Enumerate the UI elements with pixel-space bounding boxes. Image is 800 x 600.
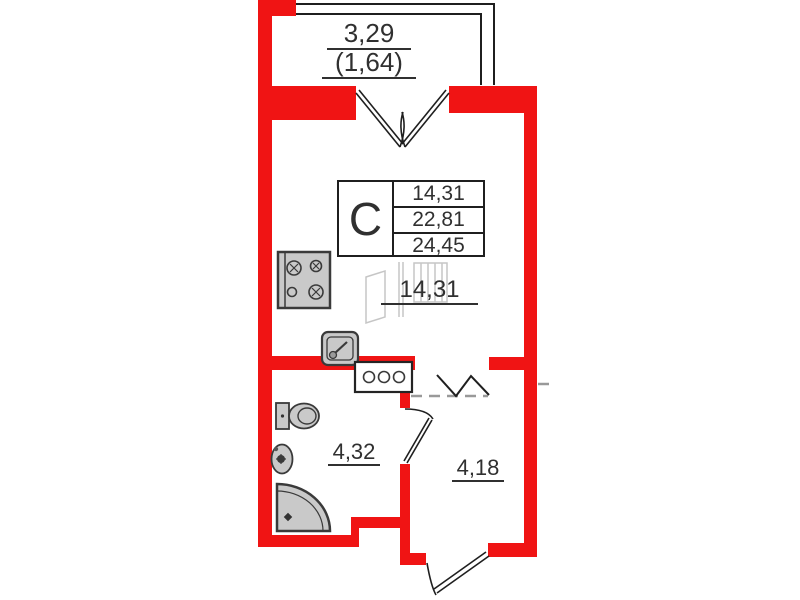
kitchen-sink-icon (322, 332, 358, 365)
unit-area-rows: 14,31 22,81 24,45 (394, 182, 483, 255)
stove-icon (278, 252, 330, 308)
wall-bottom-right (488, 543, 537, 557)
unit-total-area: 24,45 (394, 234, 483, 258)
washbasin-icon (272, 445, 293, 474)
washing-machine-icon (355, 362, 412, 392)
unit-area: 22,81 (394, 208, 483, 234)
unit-type-label: С (339, 182, 394, 255)
balcony-door (356, 90, 449, 147)
wall-left (258, 0, 272, 547)
wall-entry-left-stub (400, 553, 426, 565)
wall-bathroom-right-lower (400, 464, 410, 565)
room-area-label-living: 14,31 (381, 277, 478, 305)
wall-bathroom-bottom-upper (351, 517, 402, 528)
room-area-label-hallway: 4,18 (452, 456, 504, 482)
shower-icon (277, 484, 330, 531)
balcony-reduced-area-label: (1,64) (322, 49, 416, 79)
wall-hallway-top-stub (489, 357, 524, 370)
balcony-area-label: 3,29 (327, 20, 411, 50)
wall-right (524, 86, 537, 557)
wall-bathroom-bottom (258, 535, 358, 547)
entrance-door (427, 552, 489, 595)
floor-plan: 3,29 (1,64) С 14,31 22,81 24,45 14,31 4,… (0, 0, 800, 600)
unit-living-area: 14,31 (394, 182, 483, 208)
wall-top-right (449, 86, 537, 113)
room-area-label-bathroom: 4,32 (328, 440, 380, 466)
wall-top-left (258, 86, 356, 120)
bathroom-door (404, 409, 433, 463)
toilet-icon (276, 403, 319, 429)
unit-info-box: С 14,31 22,81 24,45 (337, 180, 485, 257)
